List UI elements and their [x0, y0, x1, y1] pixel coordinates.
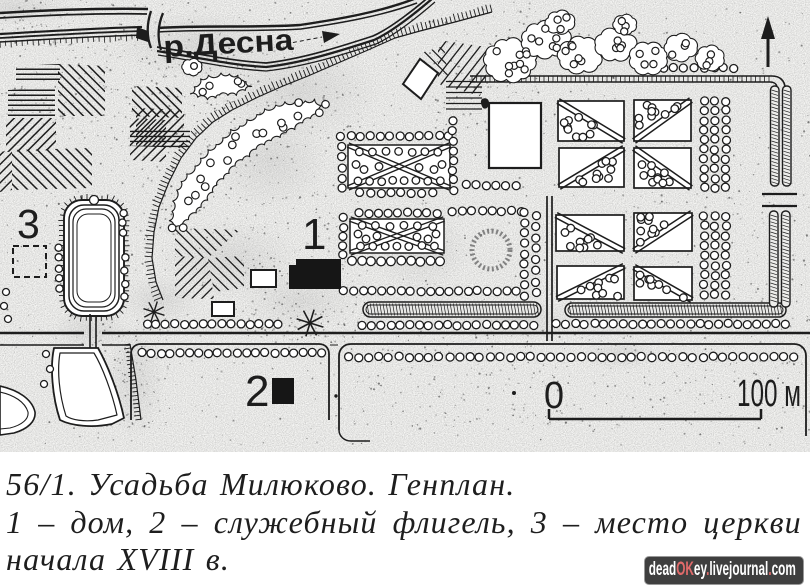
svg-text:0: 0	[544, 375, 564, 417]
svg-text:100 м: 100 м	[737, 373, 801, 415]
svg-text:2: 2	[245, 367, 269, 416]
svg-text:1: 1	[302, 210, 326, 259]
svg-text:3: 3	[17, 201, 40, 247]
